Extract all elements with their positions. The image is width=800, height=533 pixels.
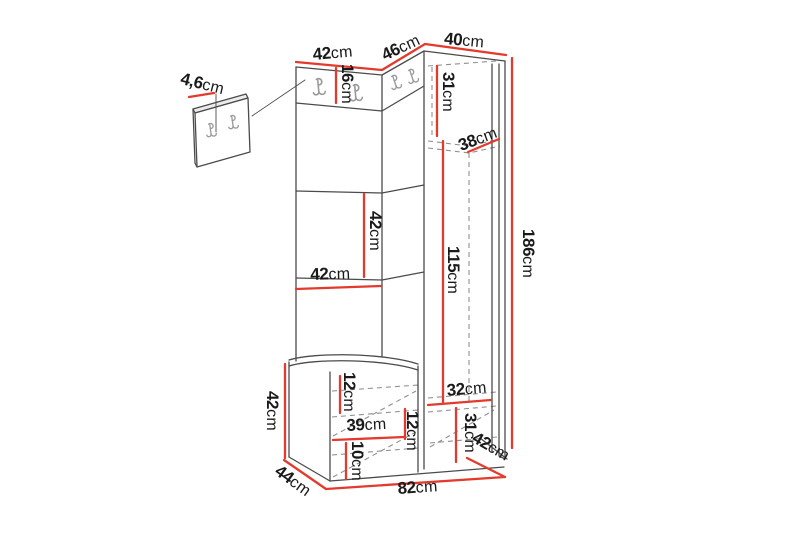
dim-label-bench-top-section-height: 12cm [339,372,358,412]
dim-value: 31 [439,72,458,90]
hook-strip-bottom [296,86,424,111]
furniture-dimension-diagram: 42cm 46cm 40cm 4,6cm 16cm 31cm 38cm 42cm… [0,0,800,533]
dim-value: 42 [312,43,332,64]
panel-callout-line [252,80,305,116]
dim-unit: cm [263,409,280,431]
dim-label-total-width: 82cm [397,477,438,499]
dim-value: 42 [310,264,329,284]
dim-unit: cm [338,82,355,104]
dim-unit: cm [464,380,487,399]
dim-unit: cm [403,429,420,451]
dim-label-top-left-width: 42cm [312,43,354,65]
hook-icon [388,74,402,90]
dim-label-bench-bottom-section-height: 10cm [347,441,366,481]
dim-label-shelf-section-width: 42cm [310,265,351,285]
dim-line-bench-inner-width [333,437,404,440]
dim-value: 12 [340,372,359,390]
dim-unit: cm [366,229,383,251]
dim-unit: cm [439,90,456,112]
dim-label-wardrobe-inner-height: 115cm [443,246,462,294]
dim-label-hook-panel-height: 16cm [337,64,356,104]
seat-bottom-curve [289,361,418,370]
dim-value: 115 [444,246,463,272]
dim-label-bench-middle-section-height: 12cm [402,411,421,451]
dim-value: 186 [519,229,538,256]
dim-value: 40 [443,29,463,50]
dim-unit: cm [200,76,225,98]
dim-value: 10 [348,441,367,459]
dim-unit: cm [415,478,438,496]
dim-value: 42 [366,211,385,229]
shelf-line-1 [296,185,424,193]
dim-label-bench-inner-width: 39cm [346,415,387,436]
furniture-drawing [0,0,800,533]
hook-icon [405,68,419,84]
dim-label-total-height: 186cm [518,229,537,278]
dim-line-shelf-section-width [296,286,381,289]
dim-value: 82 [397,478,416,498]
dim-unit: cm [348,459,365,481]
dim-unit: cm [461,33,484,52]
dim-value: 16 [338,64,357,82]
hook-icon [312,78,325,95]
wardrobe-side-edge [499,64,505,459]
dim-label-top-right-width: 40cm [443,30,485,52]
dim-label-shelf-section-height: 42cm [365,211,384,251]
dim-line-wardrobe-bottom-width [428,400,491,405]
dim-label-bench-height: 42cm [262,391,281,431]
dim-unit: cm [330,44,353,63]
dim-unit: cm [328,266,351,284]
dim-unit: cm [340,390,357,412]
dim-label-wardrobe-bottom-width: 32cm [446,379,488,401]
dim-value: 39 [346,415,365,435]
dim-value: 32 [446,379,466,400]
dim-unit: cm [364,416,387,434]
dim-value: 12 [403,411,422,429]
dim-unit: cm [444,272,461,294]
dim-unit: cm [519,256,536,278]
dim-value: 42 [263,391,282,409]
dim-label-wardrobe-top-section-height: 31cm [438,72,457,112]
main-unit [296,51,507,469]
